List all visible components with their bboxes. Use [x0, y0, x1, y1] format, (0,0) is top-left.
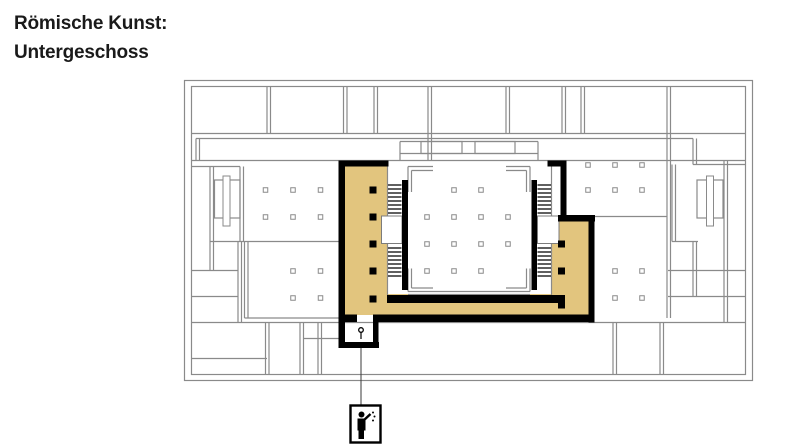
- entrance-marker-icon: [359, 328, 364, 339]
- bottom-band-walls: [192, 323, 746, 375]
- stairs-icon: [475, 142, 515, 154]
- staircase-right: [697, 176, 723, 226]
- interior-walls: [192, 87, 746, 375]
- central-hall-walls: [408, 167, 530, 295]
- stair-handrail: [707, 176, 714, 226]
- staircase-top: [400, 142, 538, 161]
- escalator-landing: [538, 216, 560, 244]
- stair-handrail: [223, 176, 230, 226]
- top-room-dividers: [267, 87, 671, 319]
- escalator-landing: [382, 216, 403, 244]
- floor-plan: [0, 0, 790, 447]
- stairs-icon: [421, 142, 462, 154]
- corridor-walls: [192, 134, 746, 165]
- screenshot: Römische Kunst: Untergeschoss: [0, 0, 790, 447]
- visitor-pictogram-icon: [351, 406, 381, 443]
- staircase-left: [215, 176, 241, 226]
- entrance-niche-wall: [339, 342, 380, 348]
